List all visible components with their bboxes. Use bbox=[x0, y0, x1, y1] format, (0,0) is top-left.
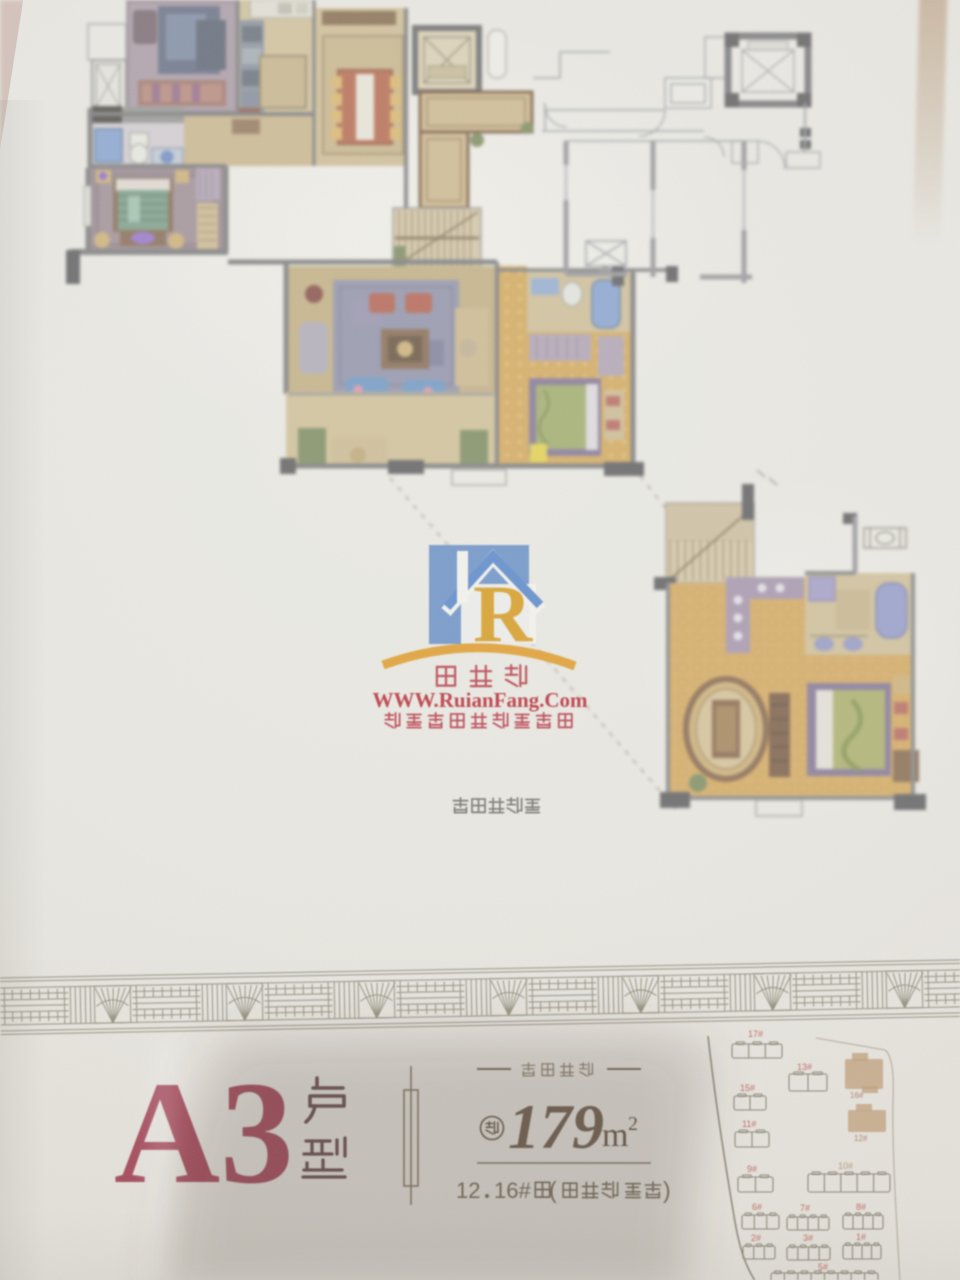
svg-text:16#: 16# bbox=[850, 1091, 864, 1100]
svg-text:12#: 12# bbox=[854, 1134, 868, 1143]
svg-text:13#: 13# bbox=[797, 1062, 812, 1072]
svg-text:10#: 10# bbox=[838, 1161, 853, 1171]
svg-text:9#: 9# bbox=[747, 1164, 757, 1174]
svg-text:17#: 17# bbox=[748, 1029, 763, 1039]
svg-text:11#: 11# bbox=[742, 1119, 756, 1129]
svg-text:15#: 15# bbox=[740, 1083, 755, 1093]
